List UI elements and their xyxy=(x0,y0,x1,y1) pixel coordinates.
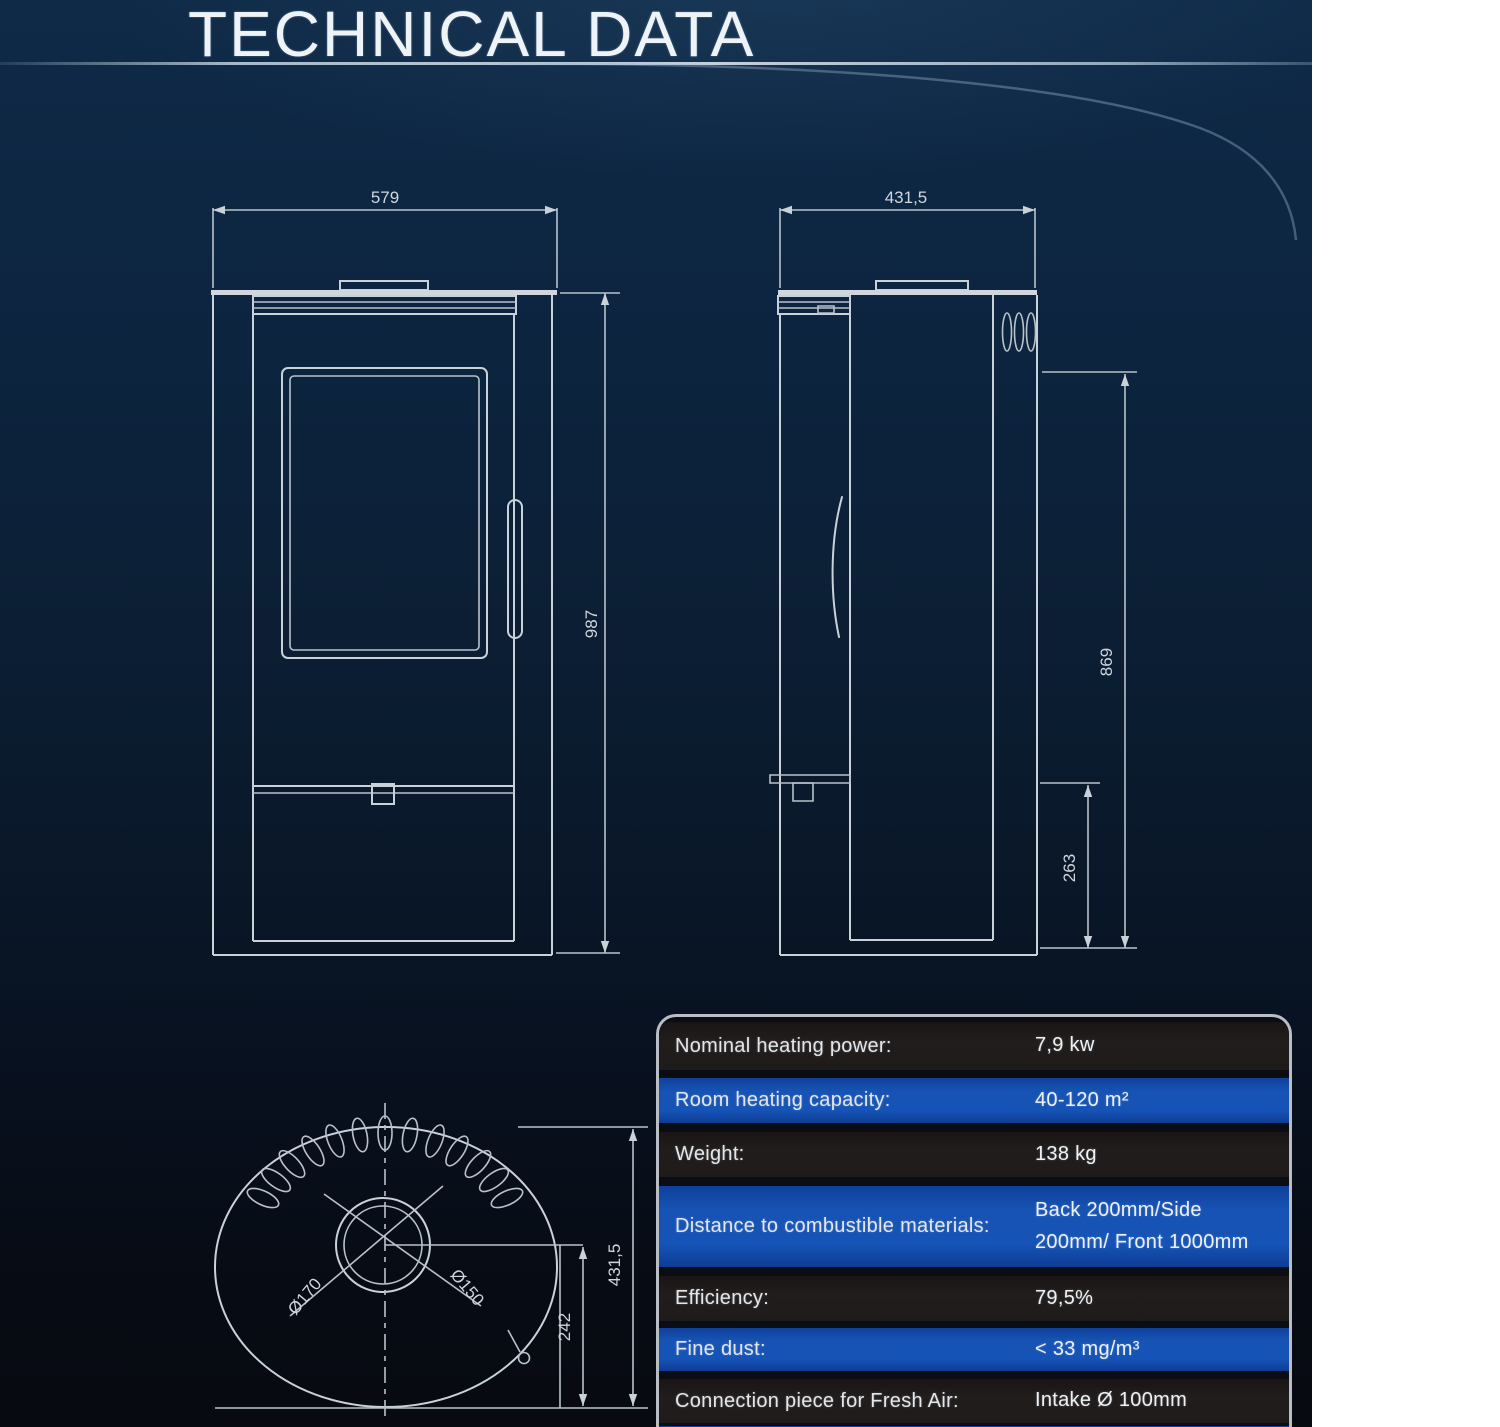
table-row: Efficiency: 79,5% xyxy=(659,1276,1289,1321)
spec-label: Fine dust: xyxy=(659,1338,1035,1361)
dark-panel: TECHNICAL DATA TECHNICAL DATA 579 xyxy=(0,0,1312,1427)
spec-label: Efficiency: xyxy=(659,1287,1035,1310)
spec-value: 40-120 m² xyxy=(1035,1085,1289,1117)
front-height-dimension: 987 xyxy=(582,610,601,638)
table-row: Weight: 138 kg xyxy=(659,1132,1289,1177)
brochure-page: TECHNICAL DATA TECHNICAL DATA 579 xyxy=(0,0,1500,1427)
spec-table: Nominal heating power: 7,9 kw Room heati… xyxy=(656,1014,1292,1427)
flue-inner-diameter-label: Ø150 xyxy=(447,1265,488,1309)
spec-label: Room heating capacity: xyxy=(659,1089,1035,1112)
row-divider xyxy=(659,1177,1289,1186)
flue-outer-diameter-label: Ø170 xyxy=(284,1274,325,1318)
spec-label: Distance to combustible materials: xyxy=(659,1215,1035,1238)
side-lower-height-dimension: 263 xyxy=(1060,854,1079,882)
table-row: Fine dust: < 33 mg/m³ xyxy=(659,1328,1289,1371)
top-depth-dimension: 431,5 xyxy=(605,1244,624,1287)
side-depth-dimension: 431,5 xyxy=(885,188,928,207)
spec-value: < 33 mg/m³ xyxy=(1035,1334,1289,1366)
row-divider xyxy=(659,1070,1289,1078)
top-view-drawing: Ø170 Ø150 242 xyxy=(215,1103,648,1420)
table-row: Distance to combustible materials: Back … xyxy=(659,1186,1289,1267)
front-width-dimension: 579 xyxy=(371,188,399,207)
spec-value: Intake Ø 100mm xyxy=(1035,1385,1289,1417)
table-row: Connection piece for Fresh Air: Intake Ø… xyxy=(659,1379,1289,1423)
table-row: Room heating capacity: 40-120 m² xyxy=(659,1078,1289,1123)
top-flue-offset-dimension: 242 xyxy=(555,1313,574,1341)
spec-label: Nominal heating power: xyxy=(659,1035,1035,1058)
row-divider xyxy=(659,1371,1289,1379)
spec-value: 79,5% xyxy=(1035,1283,1289,1315)
row-divider xyxy=(659,1123,1289,1132)
spec-value: Back 200mm/Side 200mm/ Front 1000mm xyxy=(1035,1195,1289,1258)
front-view-drawing: 579 987 xyxy=(211,188,620,955)
swoosh-curve xyxy=(500,64,1296,240)
spec-value: 138 kg xyxy=(1035,1139,1289,1171)
table-row: Nominal heating power: 7,9 kw xyxy=(659,1022,1289,1070)
spec-label: Connection piece for Fresh Air: xyxy=(659,1390,1035,1413)
row-divider xyxy=(659,1267,1289,1276)
row-divider xyxy=(659,1321,1289,1328)
side-flue-height-dimension: 869 xyxy=(1097,648,1116,676)
spec-value: 7,9 kw xyxy=(1035,1030,1289,1062)
side-view-drawing: 431,5 xyxy=(770,188,1137,955)
spec-label: Weight: xyxy=(659,1143,1035,1166)
